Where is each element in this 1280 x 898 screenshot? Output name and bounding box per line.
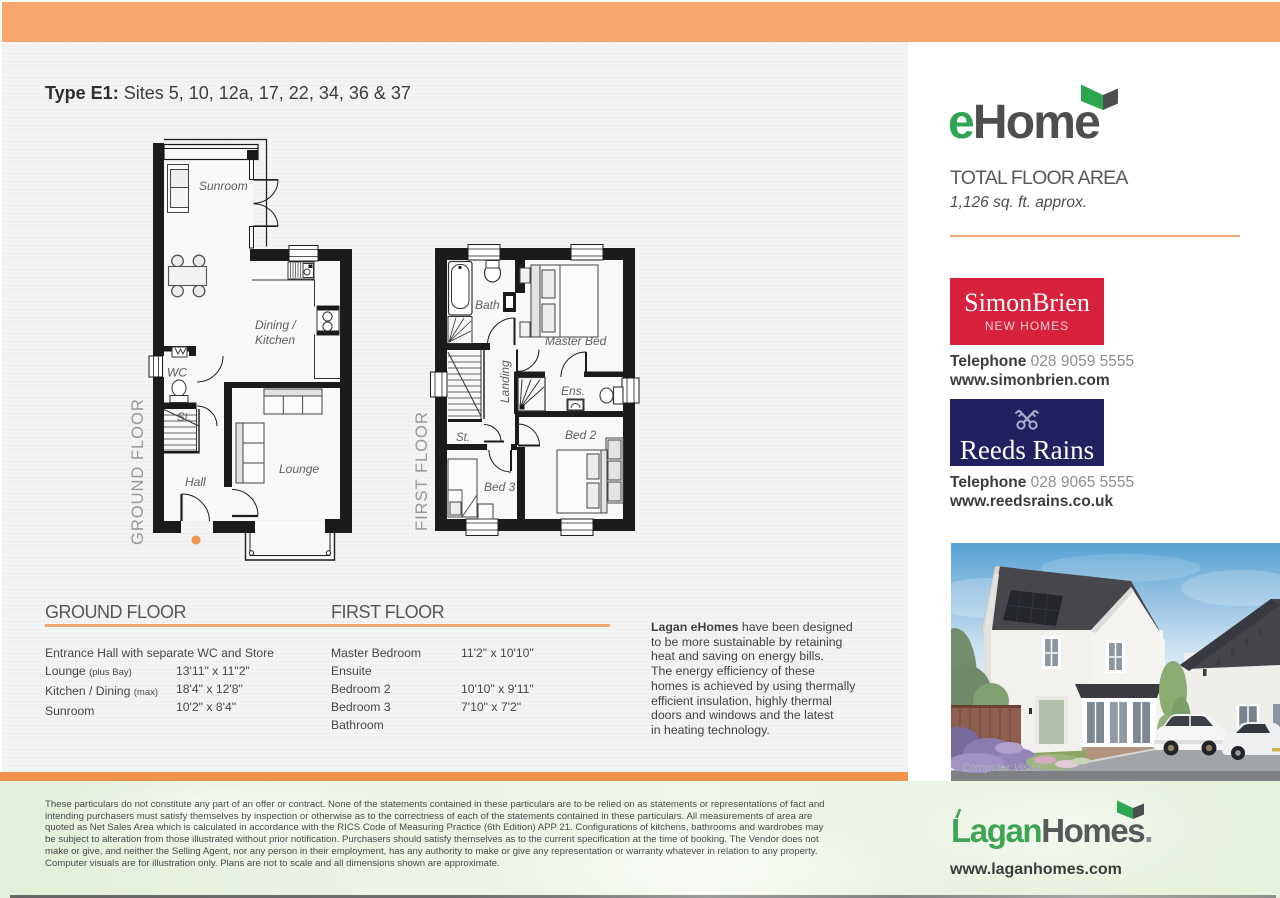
svg-text:Sunroom: Sunroom <box>199 179 248 193</box>
svg-text:Bed 2: Bed 2 <box>565 428 597 442</box>
svg-text:Landing: Landing <box>498 360 512 403</box>
svg-text:Dining /: Dining / <box>255 318 297 332</box>
svg-text:St.: St. <box>177 412 191 424</box>
svg-text:St.: St. <box>456 432 470 444</box>
svg-text:Bath: Bath <box>475 298 500 312</box>
svg-text:Hall: Hall <box>185 475 206 489</box>
svg-text:Kitchen: Kitchen <box>255 333 295 347</box>
svg-text:Bed 3: Bed 3 <box>484 480 516 494</box>
svg-text:Lounge: Lounge <box>279 462 319 476</box>
svg-text:WC: WC <box>167 366 187 380</box>
svg-text:Ens.: Ens. <box>561 384 585 398</box>
svg-text:Master Bed: Master Bed <box>545 334 607 348</box>
